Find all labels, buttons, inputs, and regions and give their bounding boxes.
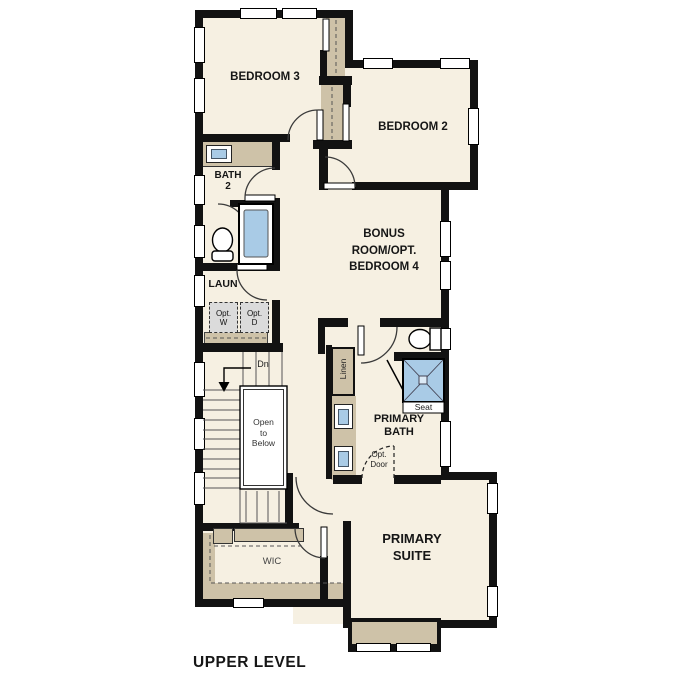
window-bedroom3-top-2 [282, 8, 317, 19]
label-bonus-line3: BEDROOM 4 [324, 259, 444, 276]
opt-washer-box: Opt. W [209, 302, 238, 333]
label-seat: Seat [404, 402, 443, 412]
bedroom3-closet [326, 18, 345, 76]
wall-shower-nook [394, 352, 441, 361]
label-opt-door-line1: Opt. [364, 450, 394, 460]
wall-laundry-bottom [195, 343, 283, 352]
window-suite-right-1 [487, 483, 498, 514]
wall-bath2-inner [230, 200, 274, 207]
window-left-4 [194, 225, 205, 258]
wall-bedroom2-bottom [352, 182, 478, 190]
window-left-8 [194, 472, 205, 505]
label-bedroom3: BEDROOM 3 [205, 71, 325, 83]
label-bonus-line2: ROOM/OPT. [324, 243, 444, 260]
window-primarybath-right-2 [440, 421, 451, 467]
label-otb-line1: Open [241, 417, 286, 428]
wall-suite-north-b [394, 475, 441, 484]
label-bath2: BATH 2 [203, 170, 253, 192]
label-primary-suite-line1: PRIMARY [352, 530, 472, 547]
bay-window-seat [352, 622, 437, 644]
label-primary-bath: PRIMARY BATH [359, 413, 439, 438]
label-opt-door: Opt. Door [364, 450, 394, 469]
window-left-2 [194, 78, 205, 113]
label-down: Dn [252, 359, 274, 369]
floor-plan: Opt. W Opt. D [0, 0, 687, 687]
label-bath2-line2: 2 [203, 181, 253, 192]
window-bedroom2-top-1 [363, 58, 393, 69]
opt-dryer-label-1: Opt. [247, 309, 262, 318]
primary-sink-1 [334, 404, 353, 429]
bedroom2-closet [321, 85, 343, 140]
label-opt-door-line2: Door [364, 460, 394, 470]
label-linen: Linen [338, 349, 348, 389]
opt-dryer-label-2: D [252, 318, 258, 327]
label-primary-bath-line1: PRIMARY [359, 413, 439, 426]
wall-bath2-laundry-divider [195, 263, 280, 271]
wall-suite-left [343, 521, 351, 628]
label-bonus-line1: BONUS [324, 226, 444, 243]
wall-suite-north-a [333, 475, 362, 484]
wall-primarybath-west [326, 345, 332, 479]
label-primary-suite: PRIMARY SUITE [352, 530, 472, 564]
window-bedroom2-top-2 [440, 58, 470, 69]
label-primary-bath-line2: BATH [359, 426, 439, 439]
window-left-1 [194, 27, 205, 63]
wic-shelf-top-a [213, 528, 233, 544]
wall-wic-east [320, 556, 328, 599]
window-left-7 [194, 418, 205, 450]
window-suite-right-2 [487, 586, 498, 617]
label-bath2-line1: BATH [203, 170, 253, 181]
wall-bath2-east-upper [272, 142, 280, 170]
label-wic: WIC [252, 556, 292, 567]
opt-washer-label-2: W [220, 318, 228, 327]
window-primarybath-right-1 [440, 328, 451, 350]
wall-bedroom3-bottom [195, 134, 290, 142]
label-laundry: LAUN [198, 278, 248, 290]
wall-primarybath-west-stub [318, 318, 325, 354]
window-left-6 [194, 362, 205, 397]
label-open-to-below: Open to Below [241, 417, 286, 449]
window-bay-1 [356, 643, 391, 652]
wall-suite-entry-west [285, 473, 293, 529]
plan-title: UPPER LEVEL [193, 654, 393, 672]
wall-hall-stub [319, 140, 328, 190]
label-otb-line2: to [241, 428, 286, 439]
opt-washer-label-1: Opt. [216, 309, 231, 318]
primary-sink-2 [334, 446, 353, 471]
wall-bedroom2-closet-right-top [343, 85, 351, 107]
wall-bath2-east-mid [272, 198, 280, 270]
wic-shelf-top-b [234, 528, 304, 542]
window-wic-bottom [233, 598, 264, 608]
window-bay-2 [396, 643, 431, 652]
opt-dryer-box: Opt. D [240, 302, 269, 333]
wall-wic-bottom [195, 599, 351, 607]
label-bonus-room: BONUS ROOM/OPT. BEDROOM 4 [324, 226, 444, 276]
window-bedroom3-top-1 [240, 8, 277, 19]
wall-primarybath-north-east [380, 318, 441, 327]
label-otb-line3: Below [241, 438, 286, 449]
bath2-sink [206, 145, 232, 163]
label-bedroom2: BEDROOM 2 [353, 121, 473, 133]
label-primary-suite-line2: SUITE [352, 547, 472, 564]
